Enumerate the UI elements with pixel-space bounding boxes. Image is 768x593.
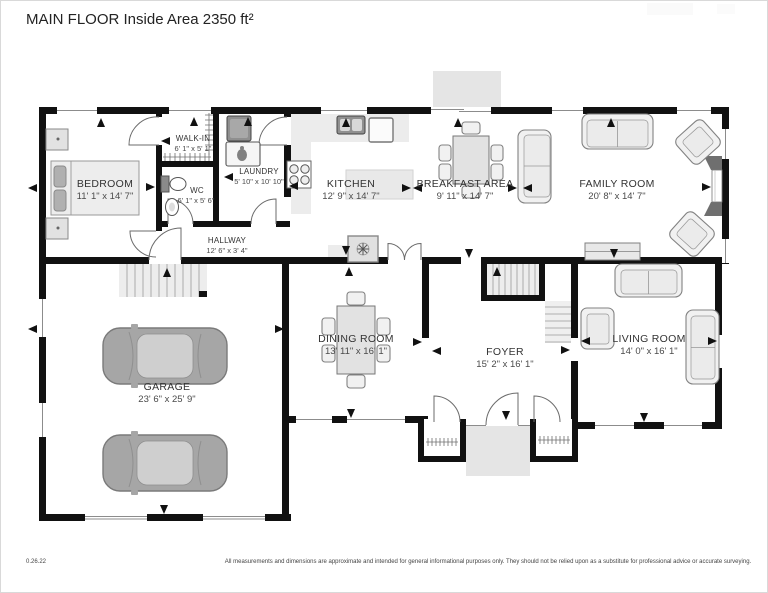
footer-disclaimer: All measurements and dimensions are appr… bbox=[225, 559, 752, 565]
room-dims-kitchen: 12' 9" x 14' 7" bbox=[322, 191, 379, 202]
wall-oven bbox=[369, 118, 393, 142]
sofa bbox=[582, 114, 653, 149]
basement-stairs bbox=[119, 264, 207, 297]
room-label-garage: GARAGE bbox=[144, 381, 191, 393]
sofa bbox=[686, 310, 719, 384]
toilet bbox=[161, 176, 186, 192]
room-dims-wc: 6' 1" x 5' 6" bbox=[178, 196, 215, 205]
room-label-living-room: LIVING ROOM bbox=[612, 333, 685, 345]
entry-closet-right bbox=[530, 419, 578, 462]
room-label-walk-in: WALK-IN bbox=[176, 134, 210, 143]
room-label-wc: WC bbox=[190, 186, 204, 195]
french-door-right bbox=[405, 244, 422, 261]
floor-plan-drawing: MAIN FLOOR Inside Area 2350 ft² bbox=[1, 1, 768, 593]
room-dims-foyer: 15' 2" x 16' 1" bbox=[476, 359, 533, 370]
kitchen-sink bbox=[337, 116, 365, 134]
stove bbox=[287, 161, 311, 188]
room-dims-laundry: 5' 10" x 10' 10" bbox=[234, 177, 284, 186]
laundry-sink bbox=[226, 142, 260, 166]
room-label-dining-room: DINING ROOM bbox=[318, 333, 394, 345]
breakfast-table bbox=[453, 136, 489, 184]
room-label-hallway: HALLWAY bbox=[208, 236, 247, 245]
room-label-family-room: FAMILY ROOM bbox=[579, 178, 654, 190]
closet-left-door bbox=[434, 396, 460, 422]
laundry-door bbox=[251, 199, 276, 224]
page-title: MAIN FLOOR Inside Area 2350 ft² bbox=[26, 11, 254, 28]
floorplan-page: MAIN FLOOR Inside Area 2350 ft² bbox=[0, 0, 768, 593]
snowflake-icon bbox=[357, 243, 369, 255]
entry-porch bbox=[466, 426, 530, 476]
room-dims-living-room: 14' 0" x 16' 1" bbox=[620, 346, 677, 357]
room-label-laundry: LAUNDRY bbox=[239, 167, 279, 176]
car bbox=[103, 324, 227, 388]
room-label-bedroom: BEDROOM bbox=[77, 178, 133, 190]
room-dims-hallway: 12' 6" x 3' 4" bbox=[206, 246, 247, 255]
room-dims-dining-room: 13' 11" x 16' 1" bbox=[325, 346, 387, 357]
laundry-kitchen-door bbox=[259, 117, 287, 145]
nightstand bbox=[46, 129, 68, 150]
front-entry-door bbox=[486, 393, 518, 425]
room-label-kitchen: KITCHEN bbox=[327, 178, 375, 190]
french-door-left bbox=[388, 244, 405, 261]
foyer-stairs-upper bbox=[487, 264, 539, 295]
room-dims-family-room: 20' 8" x 14' 7" bbox=[588, 191, 645, 202]
room-dims-garage: 23' 6" x 25' 9" bbox=[138, 394, 195, 405]
room-dims-breakfast-area: 9' 11" x 14' 7" bbox=[437, 191, 494, 202]
closet-right-door bbox=[534, 396, 560, 422]
walkin-door bbox=[129, 117, 159, 145]
room-label-breakfast-area: BREAKFAST AREA bbox=[417, 178, 514, 190]
loveseat bbox=[615, 264, 682, 297]
loveseat bbox=[518, 130, 551, 203]
foyer-stairs-lower bbox=[545, 301, 571, 343]
room-dims-walk-in: 6' 1" x 5' 1" bbox=[175, 144, 212, 153]
footer-date: 0.26.22 bbox=[26, 559, 47, 565]
room-label-foyer: FOYER bbox=[486, 346, 524, 358]
room-dims-bedroom: 11' 1" x 14' 7" bbox=[77, 191, 134, 202]
bedroom-door bbox=[130, 231, 156, 257]
watermark bbox=[647, 3, 735, 15]
refrigerator bbox=[348, 236, 378, 262]
nightstand bbox=[46, 218, 68, 239]
rear-stoop bbox=[433, 71, 501, 109]
entry-closet-left bbox=[418, 419, 466, 462]
basement-stairs-door bbox=[149, 228, 181, 260]
car bbox=[103, 431, 227, 495]
armchair bbox=[667, 209, 717, 258]
